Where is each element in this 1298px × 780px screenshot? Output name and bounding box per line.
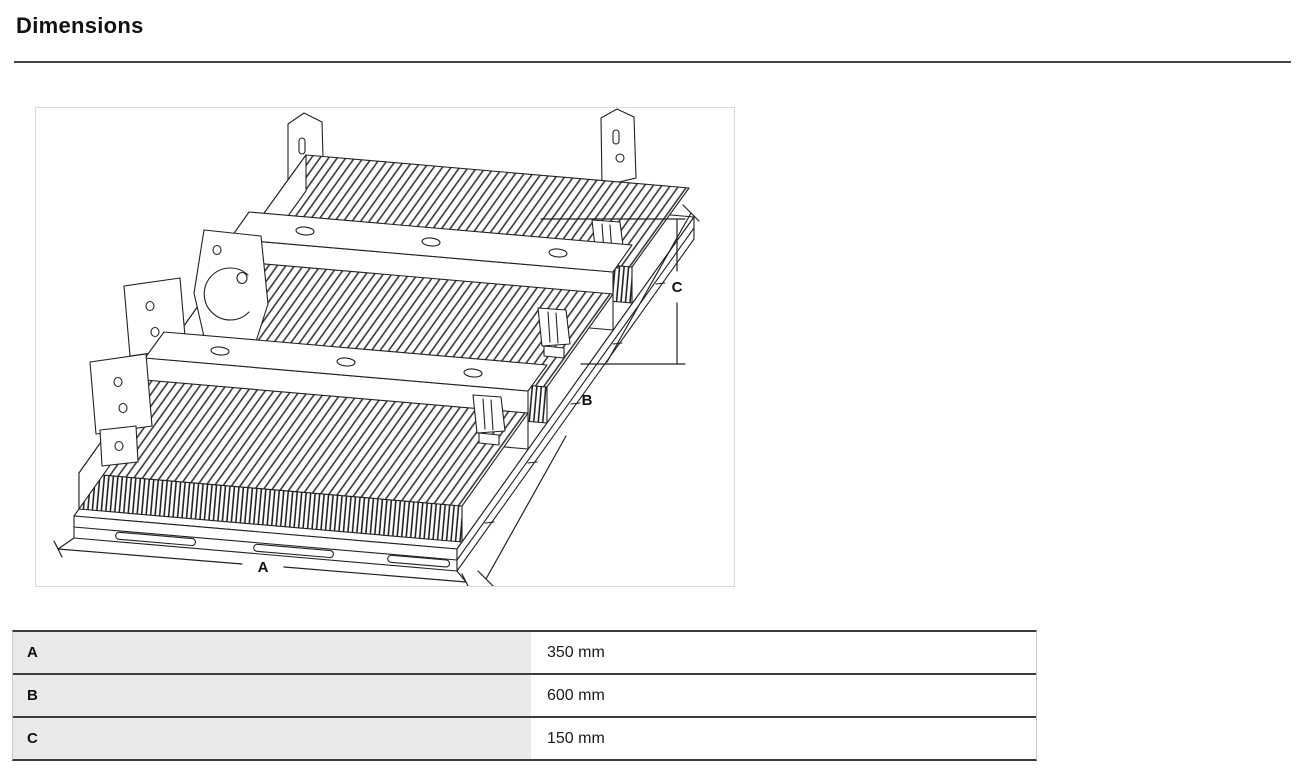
row-b-label: B bbox=[13, 675, 531, 716]
floodlight-drawing: A B C bbox=[36, 108, 734, 586]
title-rule bbox=[14, 61, 1291, 63]
dim-label-a: A bbox=[258, 559, 269, 576]
dim-label-c: C bbox=[672, 279, 683, 296]
page-title: Dimensions bbox=[16, 13, 144, 39]
table-row-c: C 150 mm bbox=[13, 718, 1036, 759]
dimension-figure: A B C bbox=[35, 107, 735, 587]
row-a-value: 350 mm bbox=[531, 632, 1036, 673]
dim-label-b: B bbox=[582, 392, 593, 409]
row-a-label: A bbox=[13, 632, 531, 673]
table-row-a: A 350 mm bbox=[13, 632, 1036, 675]
dimensions-table: A 350 mm B 600 mm C 150 mm bbox=[12, 630, 1037, 761]
row-c-value: 150 mm bbox=[531, 718, 1036, 759]
row-c-label: C bbox=[13, 718, 531, 759]
row-b-value: 600 mm bbox=[531, 675, 1036, 716]
table-row-b: B 600 mm bbox=[13, 675, 1036, 718]
datasheet-page: Dimensions bbox=[0, 0, 1298, 780]
